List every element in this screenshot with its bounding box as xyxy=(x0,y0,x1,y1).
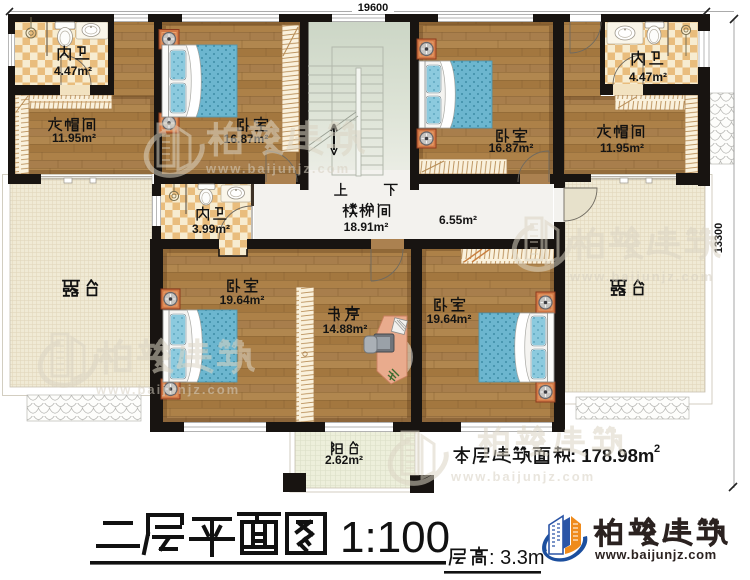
svg-text:www.baijunjz.com: www.baijunjz.com xyxy=(205,161,350,176)
svg-text:: 3.3m: : 3.3m xyxy=(489,547,545,569)
svg-text:www.baijunjz.com: www.baijunjz.com xyxy=(569,269,714,284)
svg-text:www.baijunjz.com: www.baijunjz.com xyxy=(450,469,595,484)
svg-text:11.95m²: 11.95m² xyxy=(52,131,96,145)
svg-text:18.91m²: 18.91m² xyxy=(344,220,389,234)
svg-text:3.99m²: 3.99m² xyxy=(192,222,230,236)
svg-text:11.95m²: 11.95m² xyxy=(600,141,644,155)
svg-text:1:100: 1:100 xyxy=(340,513,450,562)
svg-text:www.baijunjz.com: www.baijunjz.com xyxy=(95,382,240,397)
svg-text:19.64m²: 19.64m² xyxy=(220,293,265,307)
svg-text:www.baijunjz.com: www.baijunjz.com xyxy=(594,547,717,562)
svg-text:4.47m²: 4.47m² xyxy=(629,70,667,84)
svg-text:4.47m²: 4.47m² xyxy=(54,64,92,78)
svg-text:19600: 19600 xyxy=(358,2,389,14)
svg-text:2.62m²: 2.62m² xyxy=(325,453,363,467)
svg-text:16.87m²: 16.87m² xyxy=(489,141,534,155)
svg-text:14.88m²: 14.88m² xyxy=(323,322,368,336)
svg-text:6.55m²: 6.55m² xyxy=(439,213,477,227)
svg-text:19.64m²: 19.64m² xyxy=(427,312,472,326)
svg-text:2: 2 xyxy=(654,443,660,455)
